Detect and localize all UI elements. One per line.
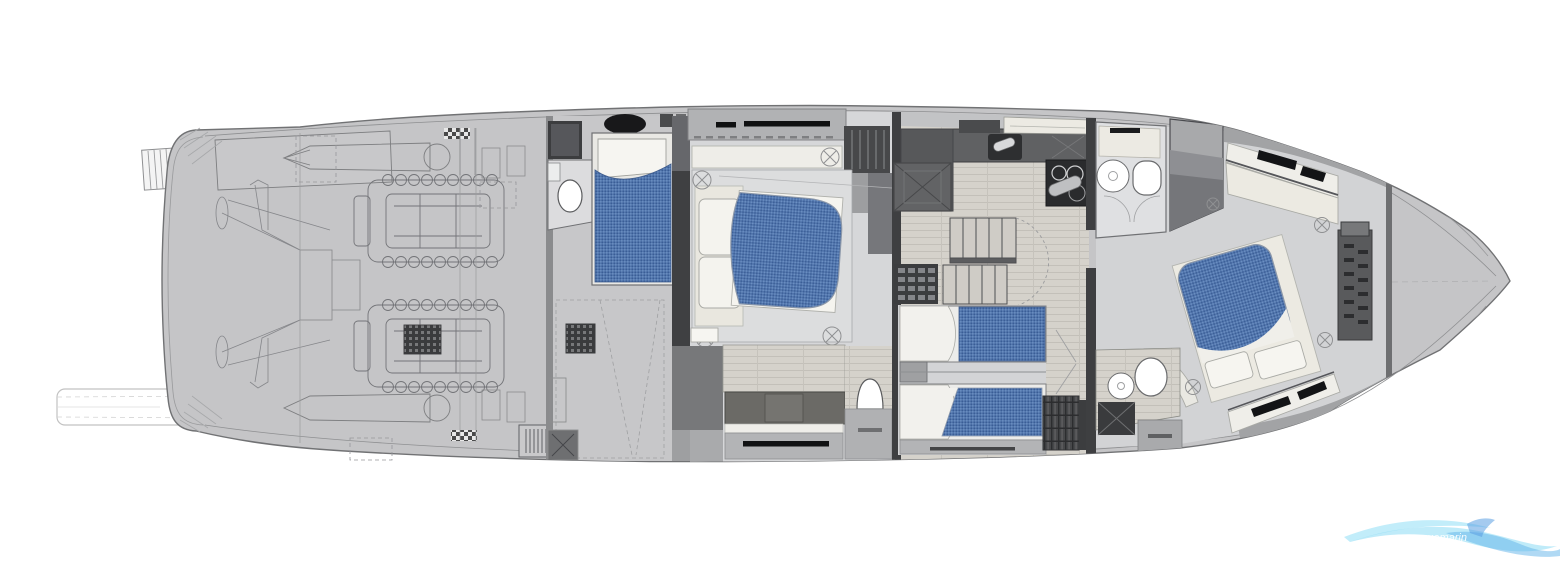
svg-text:aquamarin: aquamarin — [1415, 532, 1467, 544]
